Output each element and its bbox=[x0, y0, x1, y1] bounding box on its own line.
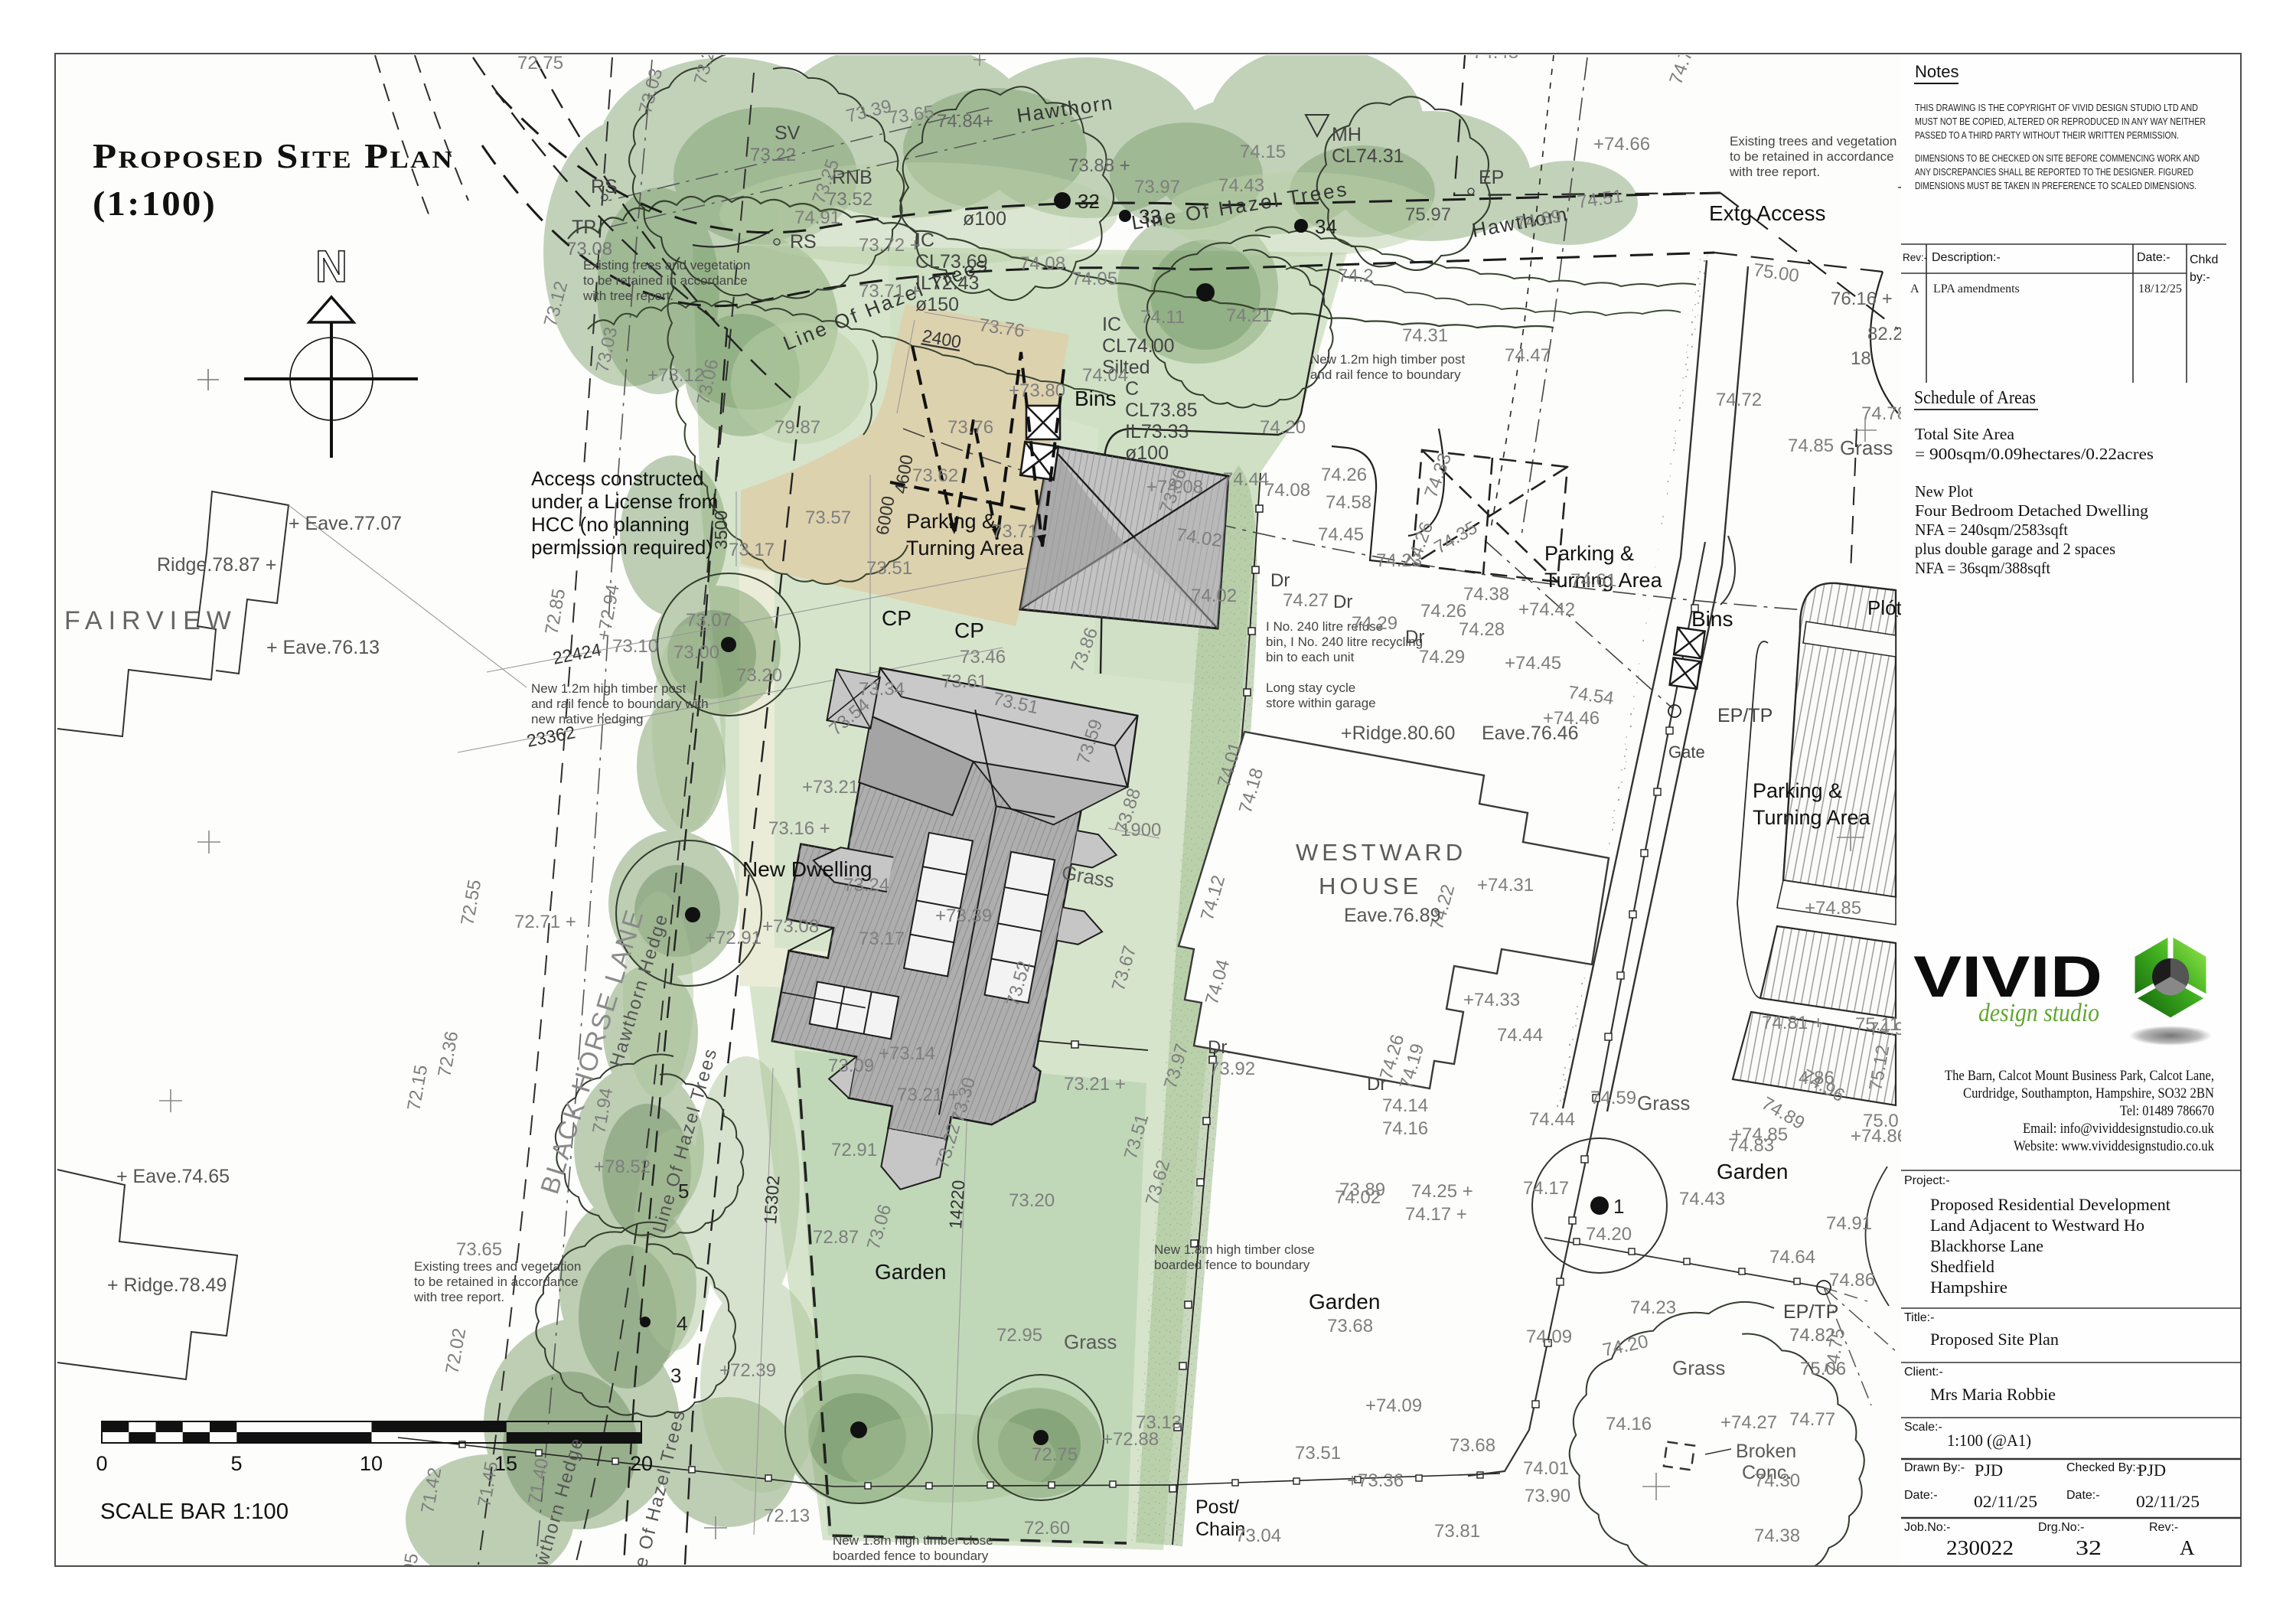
svg-text:76.16 +: 76.16 + bbox=[1831, 289, 1893, 309]
svg-text:A: A bbox=[1910, 282, 1919, 295]
svg-text:Chkd: Chkd bbox=[2190, 253, 2218, 266]
svg-text:74.91: 74.91 bbox=[794, 207, 840, 228]
svg-text:72.95: 72.95 bbox=[996, 1325, 1042, 1346]
svg-text:EP/TP: EP/TP bbox=[1783, 1301, 1838, 1323]
svg-text:bin, I No. 240 litre recycling: bin, I No. 240 litre recycling bbox=[1266, 635, 1423, 649]
svg-text:74.72: 74.72 bbox=[1716, 390, 1762, 410]
svg-text:74.91: 74.91 bbox=[1826, 1213, 1872, 1234]
svg-text:Dr: Dr bbox=[1333, 592, 1352, 612]
svg-text:+73.21: +73.21 bbox=[802, 777, 859, 798]
svg-text:Grass: Grass bbox=[1637, 1092, 1690, 1115]
svg-text:+74.45: +74.45 bbox=[1505, 653, 1561, 674]
svg-text:73.76: 73.76 bbox=[947, 417, 993, 438]
svg-text:N: N bbox=[315, 242, 347, 292]
svg-text:73.61: 73.61 bbox=[941, 671, 987, 692]
svg-text:Gate: Gate bbox=[1668, 742, 1705, 762]
svg-text:MH: MH bbox=[1332, 124, 1362, 145]
svg-text:RS: RS bbox=[790, 231, 817, 253]
svg-text:73.17: 73.17 bbox=[729, 540, 775, 560]
svg-text:Proposed Site Plan: Proposed Site Plan bbox=[1930, 1330, 2059, 1349]
svg-text:72.71 +: 72.71 + bbox=[514, 912, 576, 932]
svg-text:= 900sqm/0.09hectares/0.22acre: = 900sqm/0.09hectares/0.22acres bbox=[1915, 445, 2154, 463]
svg-text:Post/: Post/ bbox=[1195, 1496, 1239, 1518]
svg-text:SV: SV bbox=[775, 122, 801, 144]
svg-text:ANY DISCREPANCIES SHALL BE REP: ANY DISCREPANCIES SHALL BE REPORTED TO T… bbox=[1915, 167, 2193, 178]
svg-text:74.28: 74.28 bbox=[1459, 619, 1505, 640]
svg-text:WESTWARD: WESTWARD bbox=[1296, 839, 1466, 866]
svg-text:+ Eave.74.65: + Eave.74.65 bbox=[116, 1166, 230, 1187]
svg-text:+72.91: +72.91 bbox=[705, 928, 762, 948]
svg-text:+74.27: +74.27 bbox=[1720, 1412, 1777, 1433]
svg-text:Plót: Plót bbox=[1867, 596, 1903, 619]
svg-text:4: 4 bbox=[677, 1312, 687, 1335]
svg-text:DIMENSIONS MUST BE TAKEN IN PR: DIMENSIONS MUST BE TAKEN IN PREFERENCE T… bbox=[1915, 181, 2197, 191]
svg-text:74.02: 74.02 bbox=[1191, 586, 1237, 606]
svg-text:Parking &: Parking & bbox=[906, 510, 996, 533]
svg-text:34: 34 bbox=[1315, 215, 1337, 238]
svg-text:74.15: 74.15 bbox=[1240, 142, 1286, 162]
svg-text:Garden: Garden bbox=[1309, 1290, 1380, 1314]
svg-text:74.02: 74.02 bbox=[1335, 1187, 1381, 1208]
svg-text:+ Eave.76.13: + Eave.76.13 bbox=[266, 637, 380, 658]
svg-text:Ridge.78.87 +: Ridge.78.87 + bbox=[157, 554, 276, 576]
svg-text:75.97: 75.97 bbox=[1405, 204, 1451, 225]
svg-text:73.51: 73.51 bbox=[866, 558, 912, 579]
svg-text:Land Adjacent to Westward Ho: Land Adjacent to Westward Ho bbox=[1930, 1216, 2144, 1235]
svg-text:74.2: 74.2 bbox=[1338, 266, 1374, 286]
svg-text:73.04: 73.04 bbox=[1235, 1526, 1281, 1546]
svg-text:74.38: 74.38 bbox=[1463, 584, 1509, 605]
svg-text:+73.08: +73.08 bbox=[762, 916, 819, 937]
svg-text:74.43: 74.43 bbox=[1679, 1189, 1725, 1209]
svg-text:72.75: 72.75 bbox=[1032, 1444, 1078, 1465]
svg-text:Dr: Dr bbox=[1405, 627, 1424, 648]
svg-text:73.71: 73.71 bbox=[992, 521, 1038, 542]
svg-text:32: 32 bbox=[1078, 190, 1100, 213]
svg-text:73.71 +: 73.71 + bbox=[859, 281, 921, 302]
svg-text:73.17: 73.17 bbox=[859, 928, 905, 949]
svg-text:CP: CP bbox=[882, 606, 912, 630]
svg-text:73.52: 73.52 bbox=[827, 189, 872, 210]
svg-text:NFA = 36sqm/388sqft: NFA = 36sqm/388sqft bbox=[1915, 559, 2050, 577]
svg-text:Total Site Area: Total Site Area bbox=[1915, 425, 2015, 443]
svg-text:74.38: 74.38 bbox=[1754, 1526, 1800, 1546]
svg-text:73.46: 73.46 bbox=[960, 647, 1006, 667]
svg-text:82.2: 82.2 bbox=[1867, 324, 1903, 344]
svg-text:Eave.76.89: Eave.76.89 bbox=[1344, 905, 1441, 926]
svg-text:74.29: 74.29 bbox=[1352, 613, 1397, 634]
svg-text:CP: CP bbox=[954, 618, 984, 642]
svg-text:72.60: 72.60 bbox=[1024, 1518, 1070, 1539]
svg-text:Existing trees and vegetation: Existing trees and vegetation bbox=[583, 258, 750, 273]
svg-text:72.91: 72.91 bbox=[831, 1140, 877, 1160]
svg-text:73.68: 73.68 bbox=[1450, 1435, 1495, 1456]
svg-text:to be retained in accordance: to be retained in accordance bbox=[414, 1274, 579, 1289]
svg-text:74.59: 74.59 bbox=[1590, 1088, 1636, 1108]
svg-text:74.14: 74.14 bbox=[1382, 1095, 1428, 1116]
svg-text:+74.42: +74.42 bbox=[1518, 599, 1575, 620]
svg-text:74.29: 74.29 bbox=[1419, 647, 1465, 667]
svg-text:73.13: 73.13 bbox=[1136, 1412, 1182, 1433]
svg-text:to be retained in accordance: to be retained in accordance bbox=[1730, 149, 1894, 164]
svg-text:74.84+: 74.84+ bbox=[937, 111, 993, 132]
svg-text:A: A bbox=[2180, 1536, 2195, 1559]
svg-text:boarded fence to boundary: boarded fence to boundary bbox=[1154, 1258, 1310, 1272]
svg-text:ø100: ø100 bbox=[1125, 442, 1169, 464]
svg-text:NFA = 240sqm/2583sqft: NFA = 240sqm/2583sqft bbox=[1915, 521, 2068, 539]
svg-text:IL73.33: IL73.33 bbox=[1125, 421, 1189, 442]
svg-text:Date:-: Date:- bbox=[1904, 1489, 1938, 1502]
svg-text:73.97: 73.97 bbox=[1134, 177, 1180, 197]
svg-text:75.11: 75.11 bbox=[1855, 1014, 1900, 1035]
svg-text:Eave.76.46: Eave.76.46 bbox=[1482, 723, 1579, 744]
svg-text:73.88 +: 73.88 + bbox=[1068, 155, 1130, 176]
svg-text:73.07: 73.07 bbox=[686, 610, 732, 631]
svg-text:New Plot: New Plot bbox=[1915, 482, 1973, 501]
svg-text:New 1.8m high timber close: New 1.8m high timber close bbox=[1154, 1242, 1315, 1257]
svg-text:new native hedging: new native hedging bbox=[531, 712, 644, 726]
svg-text:74.20: 74.20 bbox=[1260, 417, 1306, 438]
svg-text:14220: 14220 bbox=[945, 1180, 968, 1230]
svg-text:74.61: 74.61 bbox=[1570, 570, 1616, 591]
svg-text:5: 5 bbox=[230, 1452, 242, 1475]
svg-text:74.64: 74.64 bbox=[1769, 1247, 1815, 1268]
svg-text:74.45: 74.45 bbox=[1318, 524, 1364, 545]
svg-text:+78.52: +78.52 bbox=[594, 1157, 651, 1177]
svg-text:+73.80: +73.80 bbox=[1009, 380, 1065, 401]
svg-text:PASSED TO A THIRD PARTY WITHOU: PASSED TO A THIRD PARTY WITHOUT THEIR WR… bbox=[1915, 130, 2179, 141]
svg-text:74.09: 74.09 bbox=[1526, 1327, 1572, 1347]
svg-text:Grass: Grass bbox=[1064, 1330, 1117, 1353]
svg-text:Extg Access: Extg Access bbox=[1709, 201, 1826, 225]
svg-text:74.26: 74.26 bbox=[1321, 465, 1367, 485]
svg-text:73.21 +: 73.21 + bbox=[1064, 1074, 1126, 1095]
svg-text:New 1.8m high timber close: New 1.8m high timber close bbox=[833, 1533, 993, 1548]
svg-text:ø100: ø100 bbox=[963, 208, 1006, 230]
svg-text:and rail fence to boundary: and rail fence to boundary bbox=[1310, 367, 1461, 382]
svg-text:74.58: 74.58 bbox=[1326, 492, 1371, 513]
svg-text:74.27: 74.27 bbox=[1283, 590, 1329, 611]
svg-text:74.08: 74.08 bbox=[1019, 253, 1065, 274]
svg-text:74.23: 74.23 bbox=[1630, 1297, 1676, 1318]
svg-text:15302: 15302 bbox=[760, 1175, 783, 1225]
svg-text:Date:-: Date:- bbox=[2137, 251, 2170, 264]
svg-text:73.00: 73.00 bbox=[673, 642, 719, 663]
svg-text:20: 20 bbox=[630, 1452, 653, 1475]
svg-text:Drawn By:-: Drawn By:- bbox=[1904, 1461, 1965, 1474]
svg-text:73.08: 73.08 bbox=[566, 239, 612, 259]
svg-text:74.78: 74.78 bbox=[1861, 403, 1907, 424]
svg-text:New 1.2m high timber post: New 1.2m high timber post bbox=[531, 681, 686, 696]
svg-text:74.17: 74.17 bbox=[1523, 1178, 1569, 1199]
svg-text:74.31: 74.31 bbox=[1402, 325, 1448, 346]
svg-text:73.81: 73.81 bbox=[1434, 1521, 1480, 1542]
svg-text:PJD: PJD bbox=[2138, 1460, 2166, 1480]
svg-text:74.01: 74.01 bbox=[1523, 1458, 1569, 1479]
svg-text:02/11/25: 02/11/25 bbox=[1974, 1492, 2037, 1511]
svg-text:TP: TP bbox=[572, 217, 596, 238]
svg-text:with tree report.: with tree report. bbox=[1729, 165, 1820, 179]
svg-text:Grass: Grass bbox=[1672, 1356, 1725, 1379]
svg-text:74.43: 74.43 bbox=[1218, 175, 1264, 196]
svg-text:bin to each unit: bin to each unit bbox=[1266, 650, 1355, 664]
svg-text:EP/TP: EP/TP bbox=[1717, 705, 1773, 726]
svg-text:74.20: 74.20 bbox=[1586, 1224, 1632, 1245]
svg-text:230022: 230022 bbox=[1946, 1536, 2014, 1559]
svg-text:Garden: Garden bbox=[1717, 1160, 1788, 1183]
svg-text:SCALE BAR 1:100: SCALE BAR 1:100 bbox=[100, 1500, 289, 1524]
svg-text:73.92: 73.92 bbox=[1209, 1059, 1255, 1079]
svg-text:73.90: 73.90 bbox=[1525, 1486, 1570, 1506]
svg-text:Bins: Bins bbox=[1075, 387, 1116, 410]
svg-text:HOUSE: HOUSE bbox=[1319, 873, 1422, 899]
svg-text:boarded fence to boundary: boarded fence to boundary bbox=[833, 1549, 989, 1563]
svg-text:Bins: Bins bbox=[1691, 607, 1733, 631]
svg-text:+ Ridge.78.49: + Ridge.78.49 bbox=[107, 1274, 227, 1296]
svg-text:+ Eave.77.07: + Eave.77.07 bbox=[289, 513, 402, 534]
svg-text:74.30: 74.30 bbox=[1754, 1470, 1800, 1491]
svg-text:Checked By:-: Checked By:- bbox=[2066, 1461, 2140, 1474]
svg-text:by:-: by:- bbox=[2190, 271, 2210, 284]
svg-text:72.75: 72.75 bbox=[517, 53, 563, 73]
svg-text:74.44: 74.44 bbox=[1223, 469, 1269, 490]
svg-text:CL74.00: CL74.00 bbox=[1102, 335, 1175, 357]
svg-text:Turning Area: Turning Area bbox=[1753, 806, 1871, 829]
svg-text:+73.12: +73.12 bbox=[647, 365, 704, 386]
svg-text:CL73.85: CL73.85 bbox=[1125, 400, 1198, 421]
svg-text:permission required): permission required) bbox=[531, 536, 713, 559]
svg-text:4.86: 4.86 bbox=[1799, 1068, 1835, 1088]
svg-text:MUST NOT BE COPIED, ALTERED OR: MUST NOT BE COPIED, ALTERED OR REPRODUCE… bbox=[1915, 116, 2206, 127]
svg-text:0: 0 bbox=[96, 1452, 107, 1475]
svg-text:PJD: PJD bbox=[1975, 1460, 2003, 1480]
svg-text:1:100 (@A1): 1:100 (@A1) bbox=[1947, 1431, 2031, 1450]
svg-text:DIMENSIONS TO BE CHECKED ON SI: DIMENSIONS TO BE CHECKED ON SITE BEFORE … bbox=[1915, 153, 2200, 164]
svg-text:79.87: 79.87 bbox=[775, 417, 820, 438]
svg-text:32: 32 bbox=[2076, 1536, 2102, 1559]
svg-text:to be retained in accordance: to be retained in accordance bbox=[583, 273, 748, 288]
svg-text:Dr.: Dr. bbox=[1208, 1037, 1231, 1058]
svg-text:3500: 3500 bbox=[711, 511, 731, 550]
svg-text:Mrs Maria Robbie: Mrs Maria Robbie bbox=[1930, 1385, 2056, 1404]
svg-text:with tree report.: with tree report. bbox=[582, 289, 673, 303]
svg-text:and rail fence to boundary wit: and rail fence to boundary with bbox=[531, 697, 709, 711]
svg-text:74.21: 74.21 bbox=[1226, 305, 1272, 326]
svg-text:RS: RS bbox=[591, 176, 618, 197]
svg-text:Existing trees and vegetation: Existing trees and vegetation bbox=[414, 1259, 581, 1274]
svg-text:74.83: 74.83 bbox=[1728, 1135, 1774, 1156]
svg-text:74.25 +: 74.25 + bbox=[1411, 1181, 1473, 1202]
svg-text:Notes: Notes bbox=[1915, 62, 1958, 81]
svg-text:74.81 +: 74.81 + bbox=[1762, 1013, 1824, 1033]
svg-text:Rev:-: Rev:- bbox=[2149, 1521, 2178, 1534]
svg-text:design studio: design studio bbox=[1978, 999, 2099, 1027]
svg-text:02/11/25: 02/11/25 bbox=[2136, 1492, 2200, 1511]
svg-text:73.51: 73.51 bbox=[1295, 1443, 1341, 1464]
svg-text:Parking &: Parking & bbox=[1544, 542, 1634, 565]
svg-text:Shedfield: Shedfield bbox=[1930, 1257, 1994, 1276]
svg-text:THIS DRAWING IS THE COPYRIGHT: THIS DRAWING IS THE COPYRIGHT OF VIVID D… bbox=[1915, 103, 2198, 113]
svg-text:74.04: 74.04 bbox=[1082, 365, 1128, 386]
svg-text:Curdridge, Southampton, Hampsh: Curdridge, Southampton, Hampshire, SO32 … bbox=[1963, 1085, 2214, 1101]
svg-text:+74.33: +74.33 bbox=[1463, 990, 1520, 1010]
svg-text:+73.36: +73.36 bbox=[1347, 1470, 1404, 1491]
svg-text:73.09: 73.09 bbox=[828, 1056, 874, 1076]
svg-text:74.86: 74.86 bbox=[1829, 1270, 1875, 1291]
svg-text:Dr: Dr bbox=[1270, 570, 1290, 591]
svg-text:18: 18 bbox=[1851, 348, 1871, 369]
svg-text:The Barn, Calcot Mount Busines: The Barn, Calcot Mount Business Park, Ca… bbox=[1945, 1068, 2214, 1084]
svg-text:LPA amendments: LPA amendments bbox=[1933, 282, 2020, 295]
svg-text:74.08: 74.08 bbox=[1264, 480, 1310, 501]
svg-text:75.0: 75.0 bbox=[1863, 1111, 1899, 1131]
svg-text:18/12/25: 18/12/25 bbox=[2138, 282, 2182, 295]
svg-text:74.05: 74.05 bbox=[1071, 269, 1117, 289]
svg-text:Title:-: Title:- bbox=[1904, 1311, 1934, 1324]
svg-text:73.22: 73.22 bbox=[750, 145, 796, 165]
svg-text:store within garage: store within garage bbox=[1266, 696, 1376, 710]
svg-text:Blackhorse Lane: Blackhorse Lane bbox=[1930, 1236, 2043, 1255]
svg-text:IC: IC bbox=[1102, 314, 1121, 335]
svg-text:Tel: 01489 786670: Tel: 01489 786670 bbox=[2120, 1103, 2214, 1119]
svg-text:Hampshire: Hampshire bbox=[1930, 1278, 2007, 1297]
svg-text:74.85: 74.85 bbox=[1788, 436, 1834, 456]
svg-text:72.13: 72.13 bbox=[764, 1506, 810, 1526]
svg-text:73.10: 73.10 bbox=[612, 636, 658, 657]
svg-text:(1:100): (1:100) bbox=[93, 184, 217, 223]
svg-text:74.26: 74.26 bbox=[1420, 601, 1466, 622]
svg-text:74.11: 74.11 bbox=[1140, 307, 1185, 328]
svg-text:Garden: Garden bbox=[875, 1260, 946, 1284]
svg-text:73.21 +: 73.21 + bbox=[897, 1085, 959, 1105]
svg-text:Website: www.vividdesignstudio: Website: www.vividdesignstudio.co.uk bbox=[2014, 1138, 2214, 1154]
svg-text:Drg.No:-: Drg.No:- bbox=[2038, 1521, 2084, 1534]
svg-text:73.24: 73.24 bbox=[843, 875, 889, 896]
svg-text:+74.85: +74.85 bbox=[1805, 898, 1861, 919]
svg-text:73.34: 73.34 bbox=[859, 679, 905, 700]
svg-text:Four Bedroom Detached Dwelling: Four Bedroom Detached Dwelling bbox=[1915, 501, 2149, 520]
svg-text:3: 3 bbox=[670, 1364, 681, 1387]
svg-text:74.16: 74.16 bbox=[1382, 1118, 1428, 1139]
svg-text:+73.39: +73.39 bbox=[935, 906, 992, 926]
svg-text:FAIRVIEW: FAIRVIEW bbox=[64, 606, 237, 635]
svg-text:74.44: 74.44 bbox=[1529, 1109, 1575, 1130]
svg-text:Project:-: Project:- bbox=[1904, 1174, 1950, 1187]
svg-text:73.57: 73.57 bbox=[805, 507, 851, 528]
svg-text:under a License from: under a License from bbox=[531, 490, 718, 513]
svg-text:73.65: 73.65 bbox=[456, 1239, 502, 1260]
svg-text:Proposed Residential Developme: Proposed Residential Development bbox=[1930, 1195, 2170, 1214]
svg-text:74.17 +: 74.17 + bbox=[1405, 1204, 1467, 1225]
svg-text:74.44: 74.44 bbox=[1497, 1025, 1543, 1046]
svg-text:HCC (no planning: HCC (no planning bbox=[531, 513, 690, 536]
svg-text:plus double garage and 2 space: plus double garage and 2 spaces bbox=[1915, 540, 2115, 558]
svg-text:New 1.2m high timber post: New 1.2m high timber post bbox=[1310, 352, 1465, 367]
svg-text:1: 1 bbox=[1613, 1195, 1624, 1218]
svg-text:Client:-: Client:- bbox=[1904, 1366, 1943, 1379]
svg-text:72.87: 72.87 bbox=[813, 1227, 859, 1248]
svg-text:Access constructed: Access constructed bbox=[531, 467, 703, 490]
svg-text:74.23: 74.23 bbox=[1376, 550, 1422, 571]
svg-text:+74.66: +74.66 bbox=[1593, 134, 1650, 155]
svg-text:74.47: 74.47 bbox=[1505, 345, 1551, 366]
svg-text:+74.31: +74.31 bbox=[1477, 875, 1534, 896]
svg-text:Description:-: Description:- bbox=[1932, 251, 2001, 264]
svg-text:Rev:-: Rev:- bbox=[1903, 252, 1927, 263]
svg-text:Existing trees and vegetation: Existing trees and vegetation bbox=[1730, 134, 1896, 148]
svg-text:CL74.31: CL74.31 bbox=[1332, 145, 1404, 167]
svg-text:EP: EP bbox=[1479, 167, 1504, 188]
svg-text:74.16: 74.16 bbox=[1606, 1414, 1652, 1434]
svg-text:Long stay cycle: Long stay cycle bbox=[1266, 680, 1355, 695]
svg-text:+Ridge.80.60: +Ridge.80.60 bbox=[1341, 723, 1455, 744]
svg-text:Date:-: Date:- bbox=[2066, 1489, 2100, 1502]
svg-text:+73.14: +73.14 bbox=[879, 1043, 935, 1064]
svg-text:73.20: 73.20 bbox=[736, 665, 782, 686]
svg-text:Job.No:-: Job.No:- bbox=[1904, 1521, 1950, 1534]
svg-text:Broken: Broken bbox=[1736, 1441, 1796, 1462]
svg-text:Schedule of Areas: Schedule of Areas bbox=[1914, 388, 2036, 408]
svg-text:74.77: 74.77 bbox=[1789, 1409, 1835, 1430]
svg-text:73.20: 73.20 bbox=[1009, 1190, 1055, 1211]
svg-text:1900: 1900 bbox=[1120, 820, 1161, 840]
svg-text:73.16 +: 73.16 + bbox=[768, 818, 830, 839]
svg-text:Parking &: Parking & bbox=[1753, 779, 1842, 802]
svg-text:Proposed Site Plan: Proposed Site Plan bbox=[93, 137, 454, 175]
svg-text:73.68: 73.68 bbox=[1327, 1316, 1373, 1336]
svg-text:with tree report.: with tree report. bbox=[413, 1290, 504, 1304]
svg-text:Email: info@vividdesignstudio.: Email: info@vividdesignstudio.co.uk bbox=[2023, 1121, 2214, 1137]
svg-text:Grass: Grass bbox=[1840, 436, 1893, 459]
svg-text:73.72 +: 73.72 + bbox=[859, 235, 921, 256]
svg-text:73.62: 73.62 bbox=[912, 465, 958, 486]
svg-text:10: 10 bbox=[360, 1452, 383, 1475]
svg-text:+72.39: +72.39 bbox=[719, 1360, 776, 1381]
svg-text:+74.09: +74.09 bbox=[1365, 1395, 1422, 1416]
svg-text:Scale:-: Scale:- bbox=[1904, 1421, 1942, 1434]
